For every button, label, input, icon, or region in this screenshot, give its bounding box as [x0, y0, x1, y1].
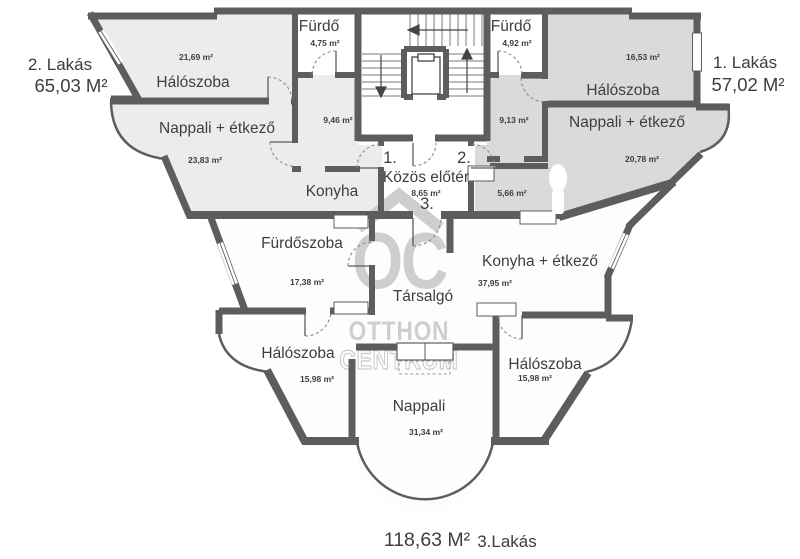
apartment-3-area: 118,63 M²: [384, 529, 471, 551]
room-name-label: Konyha + étkező: [482, 253, 598, 270]
room-name-label: Fürdő: [491, 18, 532, 35]
elevator-car-top: [418, 54, 434, 61]
apartment-2-area: 65,03 M²: [34, 75, 107, 96]
room-name-label: Hálószoba: [586, 82, 660, 99]
room-area-label: 16,53 m²: [626, 52, 660, 62]
room-name-label: Hálószoba: [261, 345, 335, 362]
room-name-label: Nappali + étkező: [159, 120, 275, 137]
room-area-label: 4,75 m²: [310, 38, 339, 48]
room-area-label: 23,83 m²: [188, 155, 222, 165]
apartment-1-area: 57,02 M²: [711, 74, 784, 95]
room-area-label: 37,95 m²: [478, 278, 512, 288]
wall-pier: [334, 302, 368, 314]
room-area-label: 9,46 m²: [323, 115, 352, 125]
door-number-1: 1.: [383, 149, 397, 167]
room-name-label: Konyha: [306, 183, 359, 200]
room-area-label: 17,38 m²: [290, 277, 324, 287]
room-name-label: Közös előtér: [383, 169, 469, 186]
room-name-label: Hálószoba: [156, 74, 230, 91]
room-name-label: Társalgó: [393, 288, 453, 305]
door-number-2: 2.: [457, 149, 471, 167]
room-area-label: 21,69 m²: [179, 52, 213, 62]
wall-pier: [520, 211, 556, 224]
room-area-label: 15,98 m²: [300, 374, 334, 384]
window-right-wall: [693, 33, 702, 71]
room-area-label: 15,98 m²: [518, 373, 552, 383]
room-name-label: Nappali + étkező: [569, 114, 685, 131]
apartment-1-label: 1. Lakás: [713, 53, 777, 72]
wall-pier: [334, 215, 368, 228]
room-name-label: Nappali: [393, 398, 446, 415]
room-area-label: 5,66 m²: [497, 188, 526, 198]
room-name-label: Fürdőszoba: [261, 235, 343, 252]
room-name-label: Fürdő: [299, 18, 340, 35]
apartment-2-label: 2. Lakás: [28, 55, 92, 74]
wall-pier: [477, 303, 516, 316]
room-area-label: 4,92 m²: [502, 38, 531, 48]
room-area-label: 20,78 m²: [625, 154, 659, 164]
floor-plan: OC OTTHON CENTRUM: [0, 0, 800, 559]
elevator: [404, 49, 446, 98]
apartment-3-label: 3.Lakás: [477, 532, 537, 551]
room-area-label: 31,34 m²: [409, 427, 443, 437]
elevator-car: [412, 57, 440, 94]
room-name-label: Hálószoba: [508, 356, 582, 373]
door-number-3: 3.: [420, 195, 434, 213]
floor-plan-page: OC OTTHON CENTRUM: [0, 0, 800, 559]
watermark-line1: OTTHON: [349, 316, 450, 346]
room-area-label: 9,13 m²: [499, 115, 528, 125]
